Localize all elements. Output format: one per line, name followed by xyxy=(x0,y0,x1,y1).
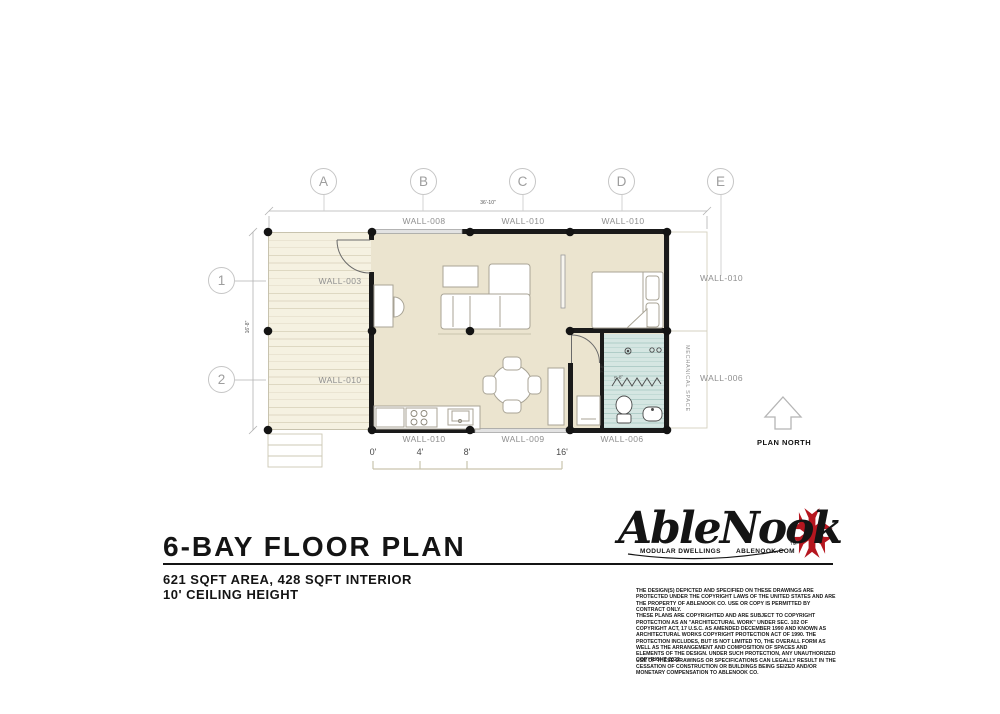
wall-label-top-1: WALL-008 xyxy=(402,216,445,226)
wall-label-bottom-2: WALL-009 xyxy=(501,434,544,444)
wall-label-bottom-1: WALL-010 xyxy=(402,434,445,444)
scale-tick-4: 4' xyxy=(417,447,424,457)
wall-label-deck-upper: WALL-003 xyxy=(318,276,361,286)
tagline-website: ABLENOOK.COM xyxy=(736,548,795,555)
dining-chair xyxy=(503,400,521,413)
tagline-modular-dwellings: MODULAR DWELLINGS xyxy=(640,548,721,555)
legal-paragraph-2: THESE PLANS ARE COPYRIGHTED AND ARE SUBJ… xyxy=(636,613,836,676)
ablenook-logo: AbleNook xyxy=(618,503,841,554)
wall-label-top-3: WALL-010 xyxy=(601,216,644,226)
wall-label-right-lower: WALL-006 xyxy=(700,373,743,383)
trademark-label: TM xyxy=(790,541,797,546)
wall-label-right-upper: WALL-010 xyxy=(700,273,743,283)
title-rule xyxy=(163,563,833,565)
bathroom-fixtures xyxy=(612,348,662,423)
sheet-title: 6-BAY FLOOR PLAN xyxy=(163,531,466,563)
tv-console xyxy=(443,266,478,287)
overall-width-dimension: 36'-10" xyxy=(466,200,510,206)
sofa-chaise xyxy=(489,264,530,297)
wall-label-deck-lower: WALL-010 xyxy=(318,375,361,385)
scale-tick-0: 0' xyxy=(370,447,377,457)
dining-table xyxy=(492,365,532,405)
bath-depth-dimension: 7'-8" xyxy=(600,359,605,379)
wardrobe xyxy=(548,368,564,425)
scale-tick-8: 8' xyxy=(464,447,471,457)
scale-bar xyxy=(373,461,562,469)
plan-north-label: PLAN NORTH xyxy=(757,438,811,447)
pillow xyxy=(646,303,659,327)
utility-unit xyxy=(577,396,600,425)
sliding-panel xyxy=(561,255,565,308)
copyright-label: COPYRIGHT 2022 xyxy=(636,657,680,663)
deck-steps xyxy=(268,434,322,467)
toilet xyxy=(616,396,632,414)
desk xyxy=(374,285,393,327)
grid-column-a: A xyxy=(310,168,337,195)
dining-chair xyxy=(483,376,496,394)
sofa-main xyxy=(441,294,530,329)
dining-chair xyxy=(503,357,521,370)
grid-column-c: C xyxy=(509,168,536,195)
scale-tick-16: 16' xyxy=(556,447,568,457)
overall-depth-dimension: 16'-8" xyxy=(245,309,251,345)
floor-plan-drawing xyxy=(0,0,1000,714)
grid-column-b: B xyxy=(410,168,437,195)
wall-label-bottom-3: WALL-006 xyxy=(600,434,643,444)
floor-plan-sheet: A B C D E 1 2 36'-10" 16'-8" 7'-8" 5'-0"… xyxy=(0,0,1000,714)
grid-row-2: 2 xyxy=(208,366,235,393)
ceiling-line: 10' CEILING HEIGHT xyxy=(163,587,299,602)
grid-column-d: D xyxy=(608,168,635,195)
grid-row-1: 1 xyxy=(208,267,235,294)
area-line: 621 SQFT AREA, 428 SQFT INTERIOR xyxy=(163,572,412,587)
grid-column-e: E xyxy=(707,168,734,195)
legal-paragraph-1: THE DESIGN(S) DEPICTED AND SPECIFIED ON … xyxy=(636,588,836,613)
north-arrow-icon xyxy=(765,397,801,429)
desk-chair xyxy=(394,297,404,317)
pillow xyxy=(646,276,659,300)
wall-label-top-2: WALL-010 xyxy=(501,216,544,226)
mechanical-space-label: MECHANICAL SPACE xyxy=(684,345,690,412)
fridge xyxy=(376,408,404,427)
legal-notice: THE DESIGN(S) DEPICTED AND SPECIFIED ON … xyxy=(636,588,836,677)
dining-chair xyxy=(528,376,541,394)
